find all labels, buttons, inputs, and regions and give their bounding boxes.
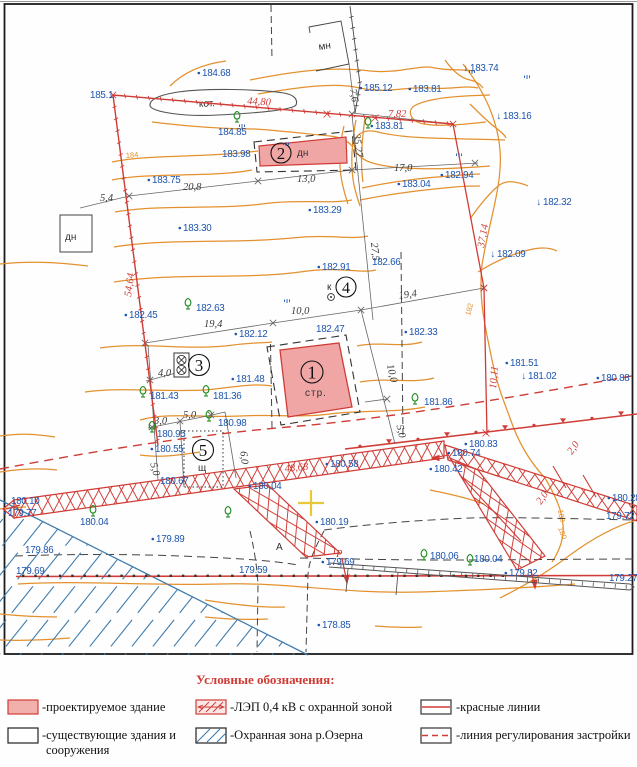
- svg-text:179.72: 179.72: [606, 511, 634, 522]
- svg-text:185.12: 185.12: [364, 83, 392, 94]
- svg-text:мн: мн: [318, 40, 332, 53]
- svg-text:17,0: 17,0: [394, 163, 413, 174]
- svg-text:182.09: 182.09: [497, 249, 525, 260]
- svg-text:-красные линии: -красные линии: [456, 700, 541, 714]
- svg-text:7,82: 7,82: [388, 109, 407, 120]
- svg-text:182.12: 182.12: [239, 329, 267, 340]
- svg-text:183.30: 183.30: [183, 223, 212, 234]
- svg-text:↓: ↓: [491, 249, 496, 260]
- svg-text:6,0: 6,0: [237, 451, 249, 466]
- svg-text:44,80: 44,80: [247, 96, 272, 109]
- svg-text:180.42: 180.42: [434, 464, 462, 475]
- svg-text:Условные обозначения:: Условные обозначения:: [196, 672, 335, 687]
- svg-text:4: 4: [342, 280, 350, 297]
- svg-text:180.98: 180.98: [218, 418, 247, 429]
- svg-text:181.43: 181.43: [150, 391, 179, 402]
- svg-text:183.75: 183.75: [152, 175, 181, 186]
- svg-text:180.04: 180.04: [474, 554, 503, 565]
- svg-text:10,11: 10,11: [488, 366, 501, 390]
- svg-text:182.45: 182.45: [129, 310, 158, 321]
- svg-text:19,4: 19,4: [204, 319, 223, 330]
- svg-text:к: к: [327, 282, 332, 293]
- svg-text:179.82: 179.82: [509, 568, 537, 579]
- svg-text:стр.: стр.: [305, 388, 327, 399]
- svg-text:180.04: 180.04: [253, 481, 282, 492]
- svg-text:182.32: 182.32: [543, 197, 571, 208]
- svg-text:182.33: 182.33: [409, 327, 438, 338]
- svg-text:180.04: 180.04: [80, 517, 109, 528]
- svg-text:13,0: 13,0: [297, 174, 316, 185]
- svg-text:180.58: 180.58: [330, 459, 359, 470]
- svg-text:184.85: 184.85: [218, 127, 247, 138]
- svg-text:179.77: 179.77: [8, 508, 36, 519]
- svg-text:185.1: 185.1: [90, 90, 113, 101]
- svg-text:183.98: 183.98: [222, 149, 251, 160]
- svg-text:↓: ↓: [464, 63, 469, 74]
- svg-text:181.86: 181.86: [424, 397, 453, 408]
- svg-text:27,5: 27,5: [368, 242, 381, 261]
- svg-text:-существующие здания и: -существующие здания и: [42, 728, 176, 742]
- svg-text:183.81: 183.81: [413, 84, 441, 95]
- svg-text:179.27: 179.27: [609, 573, 637, 584]
- svg-text:181.48: 181.48: [236, 374, 265, 385]
- svg-text:178.85: 178.85: [322, 620, 351, 631]
- svg-text:-линия регулирования застройки: -линия регулирования застройки: [456, 728, 631, 742]
- svg-text:182.63: 182.63: [196, 303, 225, 314]
- svg-text:182.47: 182.47: [316, 324, 344, 335]
- svg-text:-ЛЭП 0,4 кВ с охранной зоной: -ЛЭП 0,4 кВ с охранной зоной: [230, 700, 392, 714]
- svg-text:182.94: 182.94: [445, 170, 474, 181]
- svg-text:180.95: 180.95: [157, 429, 186, 440]
- svg-text:179.69: 179.69: [326, 557, 354, 568]
- svg-text:180.06: 180.06: [430, 551, 459, 562]
- svg-text:181.36: 181.36: [213, 391, 242, 402]
- svg-text:179.89: 179.89: [156, 534, 184, 545]
- svg-text:179.59: 179.59: [239, 565, 267, 576]
- svg-text:2: 2: [277, 144, 286, 163]
- svg-text:180.28: 180.28: [612, 493, 637, 504]
- svg-text:180.74: 180.74: [452, 448, 481, 459]
- svg-text:179.86: 179.86: [25, 545, 54, 556]
- svg-text:179.69: 179.69: [16, 566, 44, 577]
- svg-text:дн: дн: [65, 232, 76, 243]
- svg-text:3,0: 3,0: [153, 416, 168, 427]
- svg-text:182.91: 182.91: [322, 262, 350, 273]
- svg-text:20,8: 20,8: [183, 182, 202, 193]
- svg-text:-Охранная зона р.Озерна: -Охранная зона р.Озерна: [230, 728, 363, 742]
- svg-text:дн: дн: [297, 148, 308, 159]
- svg-text:181.02: 181.02: [528, 371, 556, 382]
- svg-text:5,0: 5,0: [183, 410, 197, 421]
- svg-text:183.16: 183.16: [503, 111, 532, 122]
- svg-text:↓: ↓: [537, 197, 542, 208]
- svg-text:184.68: 184.68: [202, 68, 231, 79]
- svg-text:-проектируемое здание: -проектируемое здание: [42, 700, 166, 714]
- svg-text:А: А: [276, 542, 283, 553]
- svg-text:180.55: 180.55: [155, 444, 184, 455]
- svg-text:180.67: 180.67: [160, 476, 188, 487]
- svg-text:щ: щ: [198, 463, 206, 474]
- svg-text:5,4: 5,4: [100, 193, 114, 204]
- svg-text:3: 3: [195, 356, 204, 375]
- svg-text:183.04: 183.04: [402, 179, 431, 190]
- svg-text:4,0: 4,0: [158, 368, 172, 379]
- svg-text:180.10: 180.10: [11, 496, 40, 507]
- svg-text:183.74: 183.74: [470, 63, 499, 74]
- svg-text:180.19: 180.19: [320, 517, 348, 528]
- svg-text:184: 184: [126, 150, 139, 160]
- svg-text:183.81: 183.81: [375, 121, 403, 132]
- svg-text:5: 5: [199, 441, 208, 460]
- svg-text:↓: ↓: [522, 371, 527, 382]
- svg-text:↓: ↓: [497, 111, 502, 122]
- svg-text:сооружения: сооружения: [46, 743, 110, 757]
- svg-text:1: 1: [308, 363, 317, 383]
- svg-text:181.51: 181.51: [510, 358, 538, 369]
- svg-text:10,0: 10,0: [291, 306, 310, 317]
- svg-text:180.88: 180.88: [601, 373, 630, 384]
- svg-text:183.29: 183.29: [313, 205, 341, 216]
